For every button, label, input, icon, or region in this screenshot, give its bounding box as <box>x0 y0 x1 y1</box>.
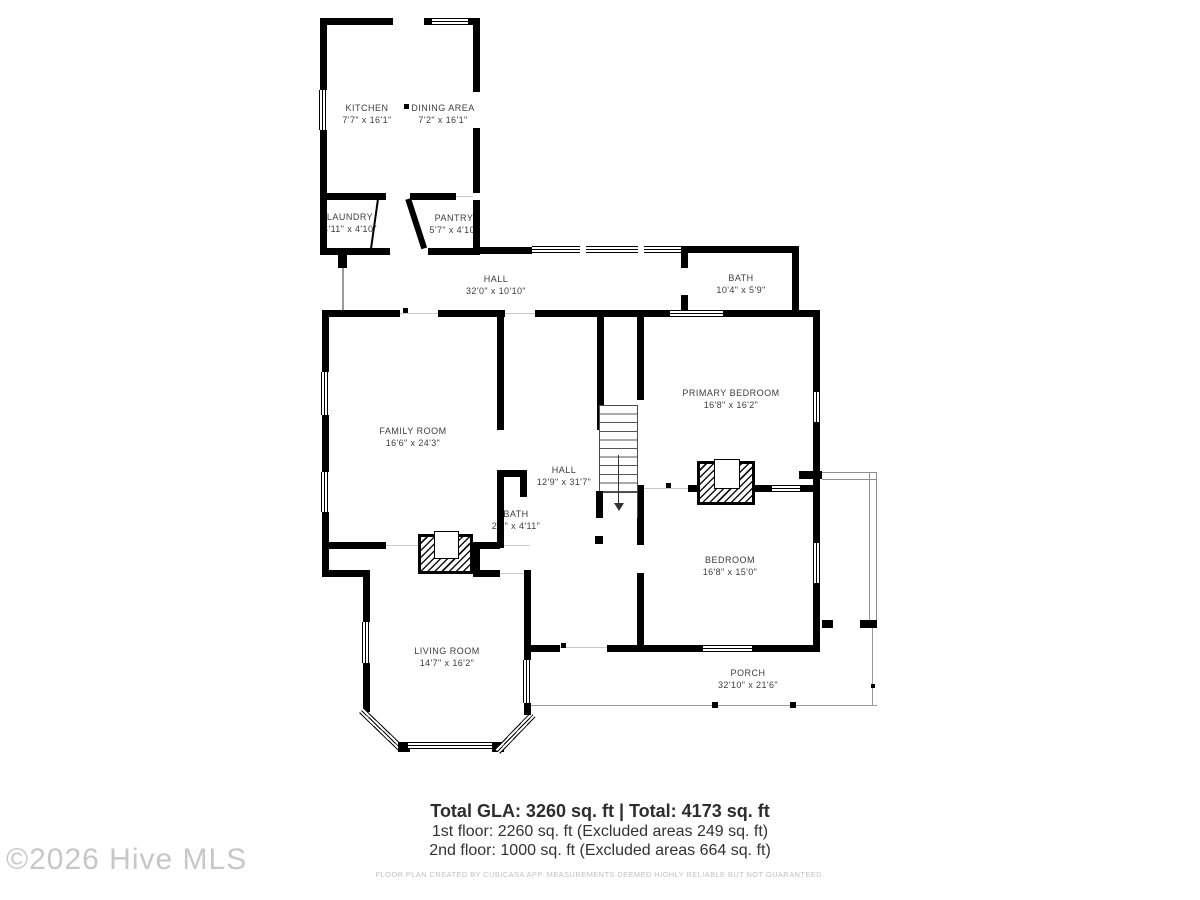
wall-tick <box>595 536 603 544</box>
wall <box>497 317 504 430</box>
wall-tick <box>790 702 796 708</box>
wall-tick <box>712 702 718 708</box>
window <box>586 246 638 253</box>
wall <box>320 18 393 25</box>
room-dimensions: 16'8" x 15'0" <box>703 566 758 578</box>
wall <box>322 310 329 372</box>
slanted-wall <box>405 198 427 249</box>
door-opening <box>505 313 535 314</box>
window <box>772 485 800 492</box>
wall <box>338 255 347 268</box>
door-opening <box>644 488 688 489</box>
wall <box>531 645 560 652</box>
wall <box>688 485 697 492</box>
room-dimensions: 4'11" x 4'10" <box>323 223 377 235</box>
wall <box>723 310 820 317</box>
wall <box>822 620 833 628</box>
wall <box>497 470 527 477</box>
floor-plan-walls <box>0 0 1200 900</box>
bay-window <box>359 708 403 751</box>
door-opening <box>560 647 607 648</box>
total-gla-line: Total GLA: 3260 sq. ft | Total: 4173 sq.… <box>0 800 1200 822</box>
wall <box>473 542 500 549</box>
porch-edge-line <box>530 705 877 706</box>
porch-railing <box>869 472 877 628</box>
wall <box>473 128 480 193</box>
wall-tick <box>871 684 875 688</box>
room-label-bath: BATH10'4" x 5'9" <box>716 272 765 296</box>
wall <box>320 248 390 255</box>
wall <box>320 130 327 200</box>
wall <box>860 620 877 628</box>
room-name: KITCHEN <box>342 102 391 114</box>
wall <box>322 415 329 472</box>
fireplace-firebox <box>714 459 740 489</box>
door-opening <box>500 545 530 546</box>
stairs-arrow-icon <box>614 503 624 511</box>
wall <box>410 193 456 200</box>
room-label-porch: PORCH32'10" x 21'6" <box>718 667 778 691</box>
window <box>670 310 723 317</box>
window <box>644 246 681 253</box>
window <box>321 372 328 415</box>
room-label-kitchen: KITCHEN7'7" x 16'1" <box>342 102 391 126</box>
first-floor-line: 1st floor: 2260 sq. ft (Excluded areas 2… <box>0 822 1200 841</box>
room-name: HALL <box>537 464 592 476</box>
window <box>362 622 369 663</box>
wall <box>322 570 370 577</box>
wall <box>428 248 480 255</box>
door-opening <box>456 196 473 197</box>
wall <box>363 577 370 622</box>
room-dimensions: 5'7" x 4'10" <box>429 224 478 236</box>
room-name: PORCH <box>718 667 778 679</box>
window <box>703 645 752 652</box>
bay-window <box>495 712 535 754</box>
porch-edge-line <box>342 268 344 310</box>
wall <box>637 317 644 400</box>
window <box>321 472 328 512</box>
wall <box>480 247 532 254</box>
door-opening <box>400 313 438 314</box>
wall <box>644 310 670 317</box>
door-opening <box>386 545 418 546</box>
window <box>813 543 820 583</box>
wall <box>320 18 327 90</box>
room-dimensions: 16'6" x 24'3" <box>379 437 446 449</box>
bay-window <box>408 742 494 749</box>
room-label-hall: HALL32'0" x 10'10" <box>466 273 526 297</box>
porch-edge-line <box>872 628 873 706</box>
room-dimensions: 32'10" x 21'6" <box>718 679 778 691</box>
room-name: BATH <box>716 272 765 284</box>
wall <box>473 18 480 92</box>
wall <box>813 583 820 652</box>
floor-plan: KITCHEN7'7" x 16'1"DINING AREA7'2" x 16'… <box>0 0 1200 900</box>
room-name: PRIMARY BEDROOM <box>682 387 779 399</box>
wall <box>799 471 822 479</box>
room-name: LIVING ROOM <box>414 645 480 657</box>
wall <box>524 592 531 660</box>
wall <box>535 310 644 317</box>
room-label-bedroom: BEDROOM16'8" x 15'0" <box>703 554 758 578</box>
room-dimensions: 16'8" x 16'2" <box>682 399 779 411</box>
wall <box>813 317 820 392</box>
window <box>432 18 470 25</box>
wall <box>363 663 370 712</box>
room-label-dining-area: DINING AREA7'2" x 16'1" <box>411 102 475 126</box>
wall <box>813 422 820 543</box>
window <box>532 246 580 253</box>
wall <box>792 246 799 317</box>
window <box>813 392 820 422</box>
wall <box>752 645 820 652</box>
room-name: HALL <box>466 273 526 285</box>
room-label-hall: HALL12'9" x 31'7" <box>537 464 592 488</box>
room-name: LAUNDRY <box>323 211 377 223</box>
room-name: PANTRY <box>429 212 478 224</box>
room-dimensions: 10'4" x 5'9" <box>716 284 765 296</box>
room-name: DINING AREA <box>411 102 475 114</box>
room-dimensions: 7'2" x 16'1" <box>411 114 475 126</box>
wall <box>438 310 505 317</box>
room-dimensions: 32'0" x 10'10" <box>466 285 526 297</box>
wall <box>520 477 527 497</box>
wall <box>473 549 480 570</box>
wall <box>681 253 688 268</box>
wall <box>637 573 644 652</box>
room-dimensions: 7'7" x 16'1" <box>342 114 391 126</box>
wall <box>800 485 813 492</box>
wall <box>596 491 603 518</box>
wall <box>755 485 772 492</box>
room-label-living-room: LIVING ROOM14'7" x 16'2" <box>414 645 480 669</box>
watermark: ©2026 Hive MLS <box>6 843 247 877</box>
room-dimensions: 12'9" x 31'7" <box>537 476 592 488</box>
wall <box>322 542 386 549</box>
wall <box>637 485 644 545</box>
wall <box>473 200 480 248</box>
wall <box>681 246 799 253</box>
room-name: BEDROOM <box>703 554 758 566</box>
wall <box>497 470 504 548</box>
room-dimensions: 14'7" x 16'2" <box>414 657 480 669</box>
fireplace-firebox <box>434 531 459 559</box>
room-label-pantry: PANTRY5'7" x 4'10" <box>429 212 478 236</box>
wall-tick <box>561 643 566 648</box>
window <box>319 90 326 130</box>
wall <box>607 645 703 652</box>
wall <box>473 570 500 577</box>
wall <box>322 549 329 570</box>
door-opening <box>500 573 524 574</box>
wall <box>320 200 327 255</box>
wall-tick <box>666 483 671 488</box>
wall <box>524 703 531 715</box>
window <box>523 660 530 703</box>
room-label-primary-bedroom: PRIMARY BEDROOM16'8" x 16'2" <box>682 387 779 411</box>
room-name: FAMILY ROOM <box>379 425 446 437</box>
stairs-direction-arrow <box>618 455 619 503</box>
wall-tick <box>403 308 408 313</box>
room-label-family-room: FAMILY ROOM16'6" x 24'3" <box>379 425 446 449</box>
wall-tick <box>404 104 409 109</box>
wall <box>325 310 400 317</box>
room-label-laundry: LAUNDRY4'11" x 4'10" <box>323 211 377 235</box>
wall <box>524 570 531 592</box>
